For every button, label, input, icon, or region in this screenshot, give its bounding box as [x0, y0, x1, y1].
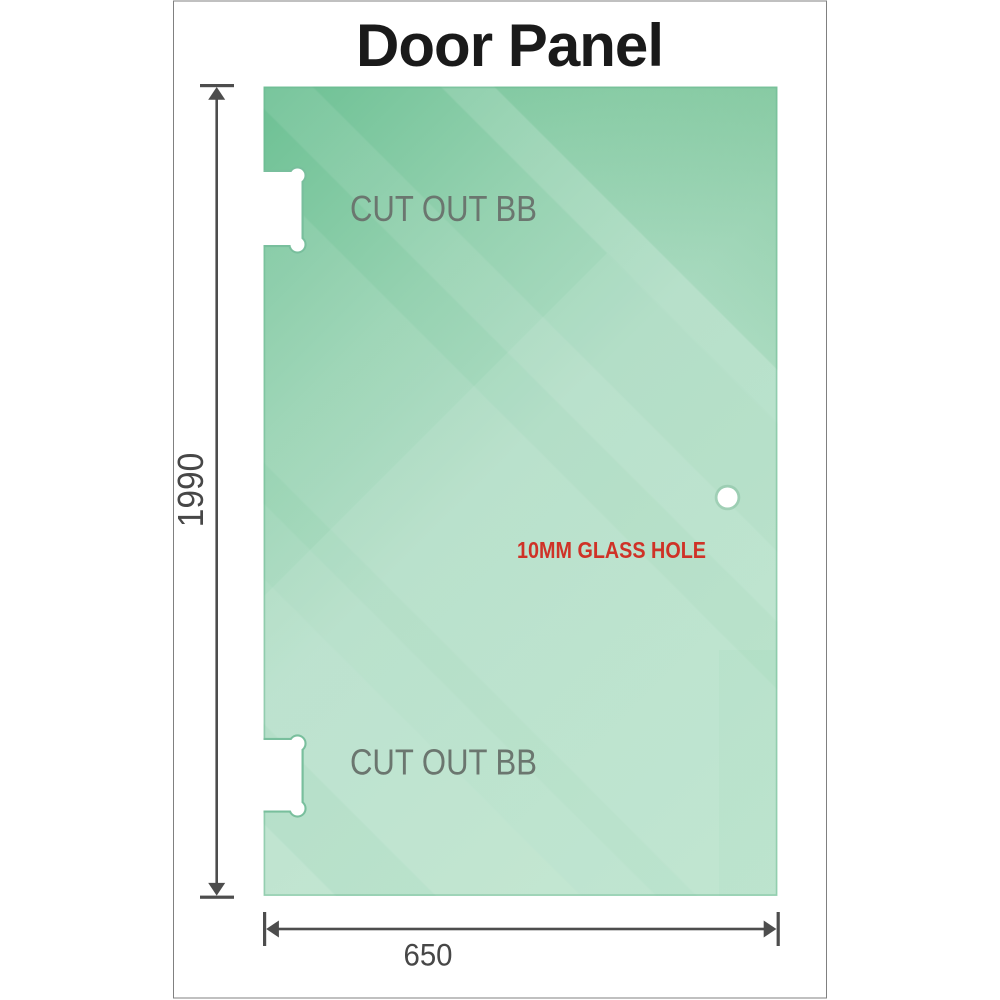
svg-text:10MM GLASS HOLE: 10MM GLASS HOLE	[517, 537, 706, 563]
svg-text:650: 650	[404, 937, 453, 973]
svg-text:CUT OUT BB: CUT OUT BB	[350, 742, 537, 783]
svg-text:Door Panel: Door Panel	[356, 12, 664, 79]
svg-text:1990: 1990	[170, 453, 211, 528]
svg-text:CUT OUT BB: CUT OUT BB	[350, 188, 537, 229]
